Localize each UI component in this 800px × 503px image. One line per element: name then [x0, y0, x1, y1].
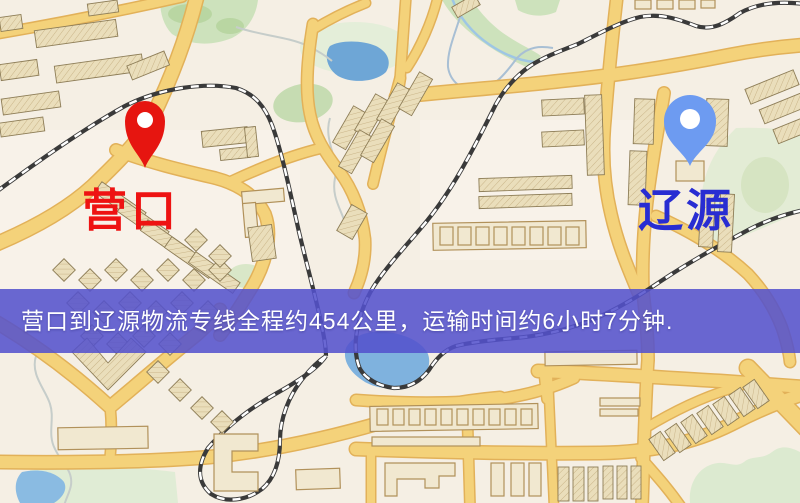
- origin-label: 营口: [82, 174, 180, 239]
- route-info-banner: 营口到辽源物流专线全程约454公里，运输时间约6小时7分钟.: [0, 289, 800, 353]
- logistics-route-map: 营口到辽源物流专线全程约454公里，运输时间约6小时7分钟. 营口 辽源: [0, 0, 800, 503]
- map-background: [0, 0, 800, 503]
- destination-label: 辽源: [638, 174, 734, 239]
- route-info-text: 营口到辽源物流专线全程约454公里，运输时间约6小时7分钟.: [21, 308, 673, 334]
